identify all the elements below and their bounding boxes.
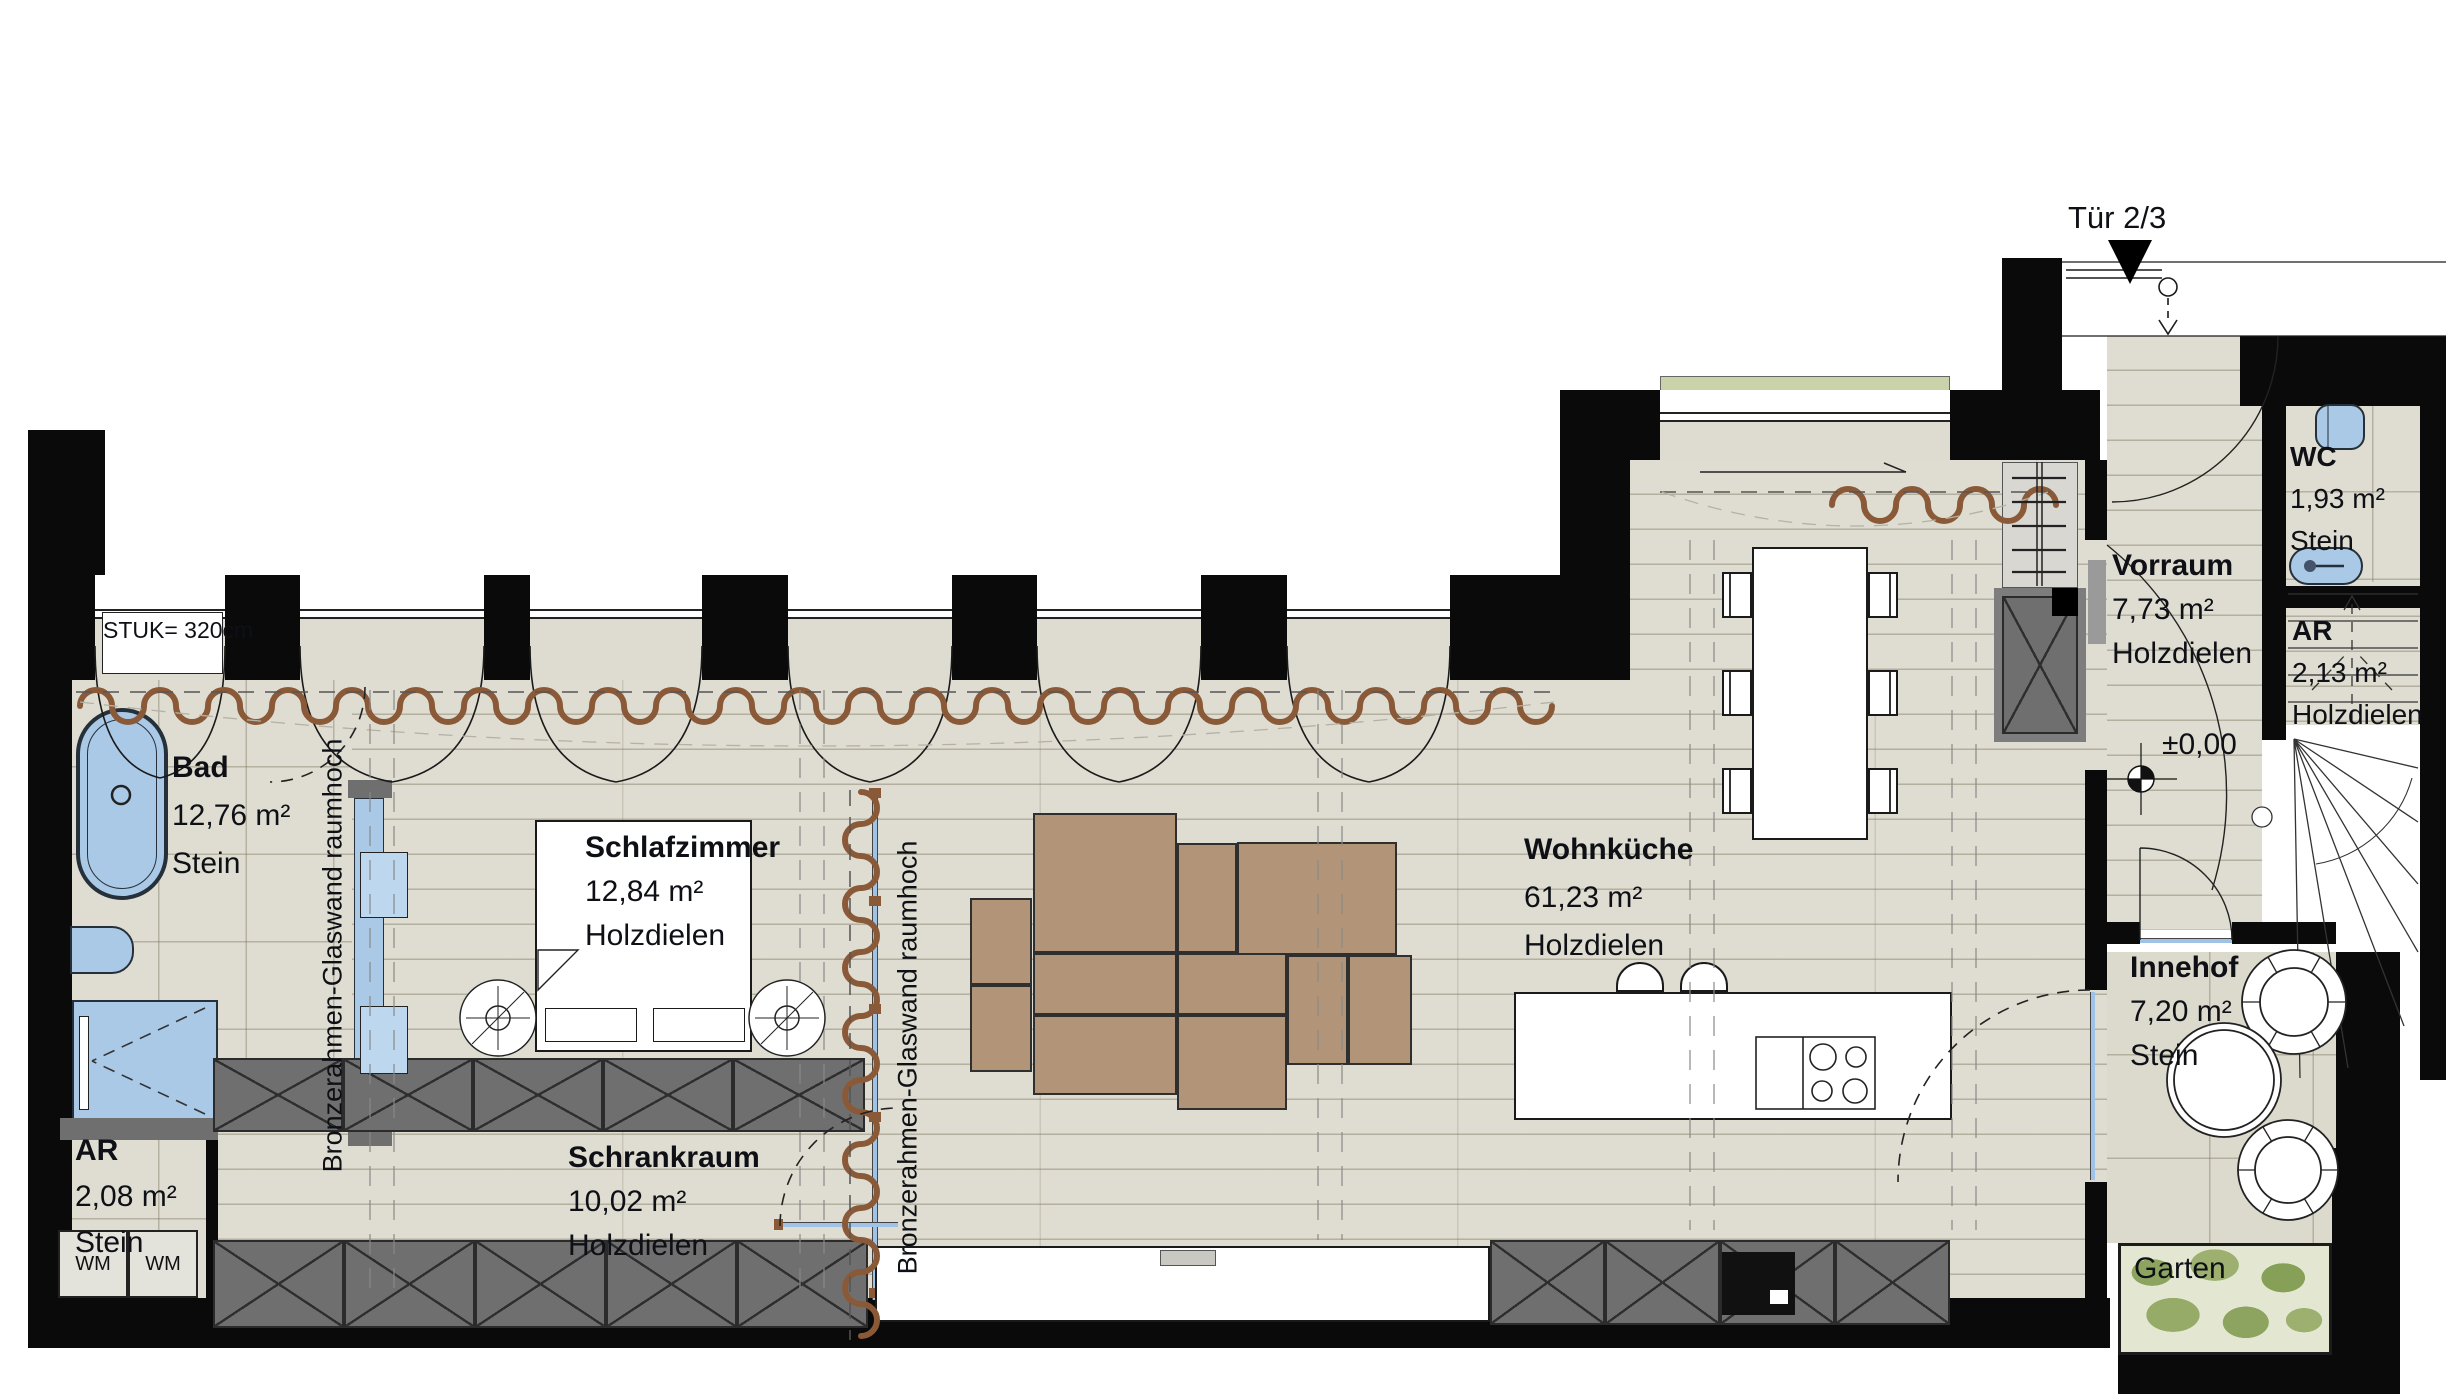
toilet — [70, 926, 134, 974]
dining-chair — [1868, 768, 1898, 814]
room-floor: Stein — [172, 840, 290, 888]
wall-entry-left-jamb — [2002, 258, 2062, 392]
glass-door-leaf — [360, 1006, 408, 1074]
wardrobe-section — [733, 1058, 865, 1132]
wall-wc-bottom — [2262, 586, 2420, 608]
room-name: AR — [75, 1128, 177, 1174]
sofa-module — [1348, 955, 1412, 1065]
glass-door-open-leaf — [780, 1222, 898, 1227]
room-name: Schrankraum — [568, 1136, 760, 1180]
room-area: 1,93 m² — [2290, 478, 2385, 520]
dining-table — [1752, 547, 1868, 840]
room-label-schrankraum: Schrankraum 10,02 m² Holzdielen — [568, 1136, 760, 1268]
window-bay — [788, 575, 952, 680]
kitchen-appliance-detail — [1770, 1290, 1788, 1304]
glass-wall-bronze-nub — [869, 1112, 881, 1122]
wall-innehof-right-a — [2336, 952, 2400, 1148]
sofa-module — [1287, 955, 1348, 1065]
sofa-module — [1177, 953, 1287, 1015]
floor-plan: STUK= 320cm WM WM — [0, 0, 2446, 1394]
dining-chair — [1868, 572, 1898, 618]
wall-ar-pillar — [2262, 606, 2286, 740]
wall-innehof-top-a — [2107, 922, 2140, 944]
glass-wall-bronze-nub — [869, 788, 881, 798]
wall-vorraum-left-c — [2085, 1182, 2107, 1298]
wardrobe-section — [473, 1058, 603, 1132]
sofa-module — [1033, 1015, 1177, 1095]
wall-kitchen-top-b — [1950, 390, 2100, 460]
dining-chair — [1722, 572, 1752, 618]
pillow — [653, 1008, 745, 1042]
dining-chair — [1722, 768, 1752, 814]
room-floor: Holzdielen — [2292, 694, 2423, 736]
room-floor: Holzdielen — [1524, 922, 1693, 970]
glass-wall-bronze-nub — [869, 1004, 881, 1014]
window-bay — [1037, 575, 1201, 680]
wall-topleft-corner — [28, 430, 105, 578]
sofa-module — [1033, 813, 1177, 953]
room-label-garten: Garten — [2134, 1252, 2226, 1286]
window-bay — [530, 575, 702, 680]
ceiling-note-line2: 320cm — [184, 617, 253, 643]
room-name: AR — [2292, 610, 2423, 652]
sofa-module — [970, 898, 1032, 985]
room-label-vorraum: Vorraum 7,73 m² Holzdielen — [2112, 544, 2252, 676]
wardrobe-section — [344, 1240, 475, 1328]
room-area: 7,73 m² — [2112, 588, 2252, 632]
sofa-module — [970, 985, 1032, 1072]
bathtub-inner — [87, 719, 157, 889]
wardrobe-section — [213, 1240, 344, 1328]
wall-bottom-right-b — [2118, 1352, 2400, 1394]
room-name: Wohnküche — [1524, 826, 1693, 874]
wall-innehof-top-b — [2232, 922, 2336, 944]
coat-rack — [2002, 462, 2078, 588]
room-area: 2,13 m² — [2292, 652, 2423, 694]
sofa-module — [1177, 1015, 1287, 1110]
room-label-wc: WC 1,93 m² Stein — [2290, 436, 2385, 562]
level-label: ±0,00 — [2162, 728, 2237, 762]
room-label-ar-right: AR 2,13 m² Holzdielen — [2292, 610, 2423, 736]
wall-vorraum-left-a — [2085, 460, 2107, 540]
room-area: 10,02 m² — [568, 1180, 760, 1224]
room-floor: Holzdielen — [2112, 632, 2252, 676]
shower — [72, 1000, 218, 1122]
room-label-wohnkueche: Wohnküche 61,23 m² Holzdielen — [1524, 826, 1693, 970]
kitchen-appliance — [1722, 1252, 1795, 1315]
room-name: Bad — [172, 744, 290, 792]
room-floor: Stein — [2290, 520, 2385, 562]
wall-bottom-right-a — [2332, 1310, 2400, 1352]
room-floor: Stein — [2130, 1034, 2238, 1078]
window-bay — [300, 575, 484, 680]
room-name: Innehof — [2130, 946, 2238, 990]
shower-screen — [79, 1016, 89, 1110]
ceiling-note-box: STUK= 320cm — [102, 612, 223, 674]
entry-door-label: Tür 2/3 — [2068, 200, 2166, 236]
room-floor: Stein — [75, 1220, 177, 1266]
door-marker-triangle — [2108, 240, 2152, 284]
wall-kitchen-top-a — [1630, 390, 1660, 460]
wall-step — [1560, 390, 1630, 680]
wardrobe-section — [603, 1058, 733, 1132]
room-area: 12,76 m² — [172, 792, 290, 840]
kitchen-island — [1514, 992, 1952, 1120]
wall-shade-vorraum — [2088, 560, 2106, 644]
wall-innehof-right-b — [2332, 1148, 2400, 1310]
room-label-bad: Bad 12,76 m² Stein — [172, 744, 290, 888]
hall-wardrobe-column — [2052, 588, 2078, 616]
room-name: Schlafzimmer — [585, 826, 780, 870]
dining-chair — [1722, 670, 1752, 716]
entry-door — [2062, 240, 2446, 336]
room-area: 7,20 m² — [2130, 990, 2238, 1034]
hall-wardrobe — [2002, 596, 2078, 734]
glass-wall-label: Bronzerahmen-Glaswand raumhoch — [318, 676, 349, 1236]
room-floor: Holzdielen — [585, 914, 780, 958]
glass-wall-label: Bronzerahmen-Glaswand raumhoch — [893, 778, 924, 1338]
pillow — [545, 1008, 637, 1042]
kitchen-unit — [1835, 1240, 1950, 1325]
bathtub — [76, 708, 168, 900]
sideboard-tray — [1160, 1250, 1216, 1266]
sofa-module — [1177, 843, 1237, 953]
room-label-innehof: Innehof 7,20 m² Stein — [2130, 946, 2238, 1078]
glass-door-leaf — [360, 852, 408, 918]
glass-wall-bronze-nub — [869, 896, 881, 906]
sofa-module — [1237, 842, 1397, 955]
wall-vorraum-left-b — [2085, 770, 2107, 990]
room-label-schlafzimmer: Schlafzimmer 12,84 m² Holzdielen — [585, 826, 780, 958]
room-floor: Holzdielen — [568, 1224, 760, 1268]
dining-chair — [1868, 670, 1898, 716]
room-area: 12,84 m² — [585, 870, 780, 914]
threshold-innehof-vorraum — [2140, 938, 2232, 943]
window-bay-kitchen — [1660, 390, 1950, 460]
kitchen-unit — [1490, 1240, 1605, 1325]
glass-wall-cap — [348, 780, 392, 798]
room-name: WC — [2290, 436, 2385, 478]
window-bay — [1287, 575, 1450, 680]
sofa-module — [1033, 953, 1177, 1015]
wall-wc-left — [2262, 336, 2286, 606]
wall-right-outer — [2420, 336, 2446, 1080]
glass-door-bronze-nub — [774, 1219, 783, 1230]
door-innehof-glass — [2090, 992, 2095, 1180]
room-area: 61,23 m² — [1524, 874, 1693, 922]
room-area: 2,08 m² — [75, 1174, 177, 1220]
ceiling-note-line1: STUK= — [103, 617, 178, 643]
room-label-ar-left: AR 2,08 m² Stein — [75, 1128, 177, 1266]
kitchen-unit — [1605, 1240, 1720, 1325]
room-name: Vorraum — [2112, 544, 2252, 588]
